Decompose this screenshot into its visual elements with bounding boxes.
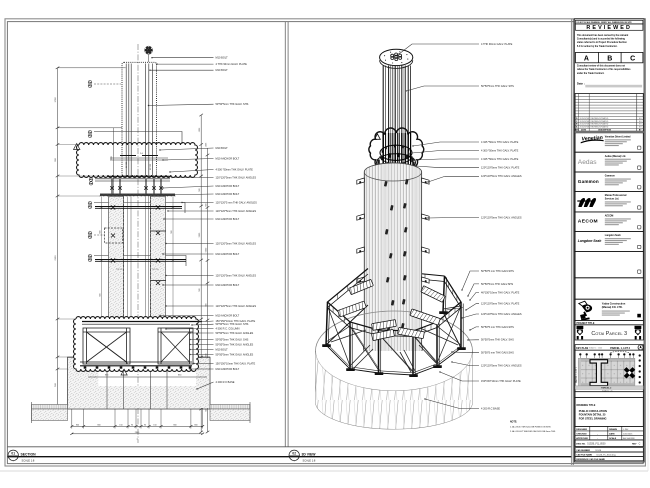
svg-text:50*50*5mm THK GALV. SHS: 50*50*5mm THK GALV. SHS bbox=[216, 337, 249, 341]
svg-text:Aedas (Macau) Ltd.: Aedas (Macau) Ltd. bbox=[605, 155, 626, 158]
svg-text:REVISED/UPDATED: REVISED/UPDATED bbox=[591, 120, 609, 123]
svg-text:Aedas: Aedas bbox=[578, 159, 597, 166]
svg-text:DRAWN: DRAWN bbox=[609, 428, 617, 431]
svg-text:42 500: 42 500 bbox=[150, 163, 152, 170]
svg-text:2015/07/08: 2015/07/08 bbox=[580, 127, 589, 129]
svg-text:A: A bbox=[584, 56, 589, 63]
svg-text:REVISED/UPDATED: REVISED/UPDATED bbox=[591, 117, 609, 120]
svg-text:Yadea Construction: Yadea Construction bbox=[602, 303, 626, 306]
svg-text:AS SHOWN: AS SHOWN bbox=[623, 437, 635, 440]
svg-text:M10 ANCHOR BOLT: M10 ANCHOR BOLT bbox=[216, 283, 240, 287]
svg-text:REVISED/UPDATED: REVISED/UPDATED bbox=[591, 123, 609, 126]
svg-text:NOTE:: NOTE: bbox=[510, 422, 517, 424]
svg-text:800: 800 bbox=[194, 424, 197, 426]
svg-text:5.4 for action by the Trade Co: 5.4 for action by the Trade Contractor. bbox=[577, 45, 618, 48]
svg-text:150*150*10mm THK GALV. PLATE: 150*150*10mm THK GALV. PLATE bbox=[481, 379, 521, 383]
svg-text:REVIEWED: REVIEWED bbox=[586, 25, 632, 31]
svg-text:C: C bbox=[630, 56, 635, 63]
svg-text:46*150*10mm THK GALV. PLATE: 46*150*10mm THK GALV. PLATE bbox=[481, 290, 520, 294]
svg-text:DWG NO.: DWG NO. bbox=[576, 443, 586, 445]
svg-text:REV: REV bbox=[632, 443, 637, 445]
svg-text:REVISED/UPDATED: REVISED/UPDATED bbox=[591, 126, 609, 129]
svg-text:M10 ANCHOR BOLT: M10 ANCHOR BOLT bbox=[216, 156, 240, 160]
svg-text:Consultants(s) and is accorded: Consultants(s) and is accorded the follo… bbox=[577, 38, 626, 41]
svg-text:4 300 *50mm THK GALV. PLATE: 4 300 *50mm THK GALV. PLATE bbox=[481, 148, 519, 152]
svg-text:120*120*5mm THK GALV. ANGLES: 120*120*5mm THK GALV. ANGLES bbox=[216, 241, 257, 245]
svg-text:Gammon: Gammon bbox=[605, 176, 616, 178]
svg-text:Langdon Seah: Langdon Seah bbox=[605, 235, 621, 237]
svg-text:150: 150 bbox=[119, 424, 122, 426]
svg-text:4 500 R.C. COLUMN: 4 500 R.C. COLUMN bbox=[216, 327, 240, 331]
svg-text:This document has been revised: This document has been revised by the re… bbox=[577, 34, 629, 37]
svg-text:DRAWING TITLE: DRAWING TITLE bbox=[577, 404, 596, 407]
svg-text:M10 BOLT: M10 BOLT bbox=[216, 68, 229, 72]
svg-text:CAD FILE NAME: CAD FILE NAME bbox=[576, 453, 592, 456]
svg-text:120*120*5mm THK GALV. PLATE: 120*120*5mm THK GALV. PLATE bbox=[481, 166, 520, 170]
svg-text:50*50*5mm THK GALV. ANGLES: 50*50*5mm THK GALV. ANGLES bbox=[216, 342, 254, 346]
svg-text:120*120*5mm THK GALV. ANGLES: 120*120*5mm THK GALV. ANGLES bbox=[481, 312, 522, 316]
svg-text:5152B_FQ_8500: 5152B_FQ_8500 bbox=[587, 442, 606, 445]
svg-text:2100: 2100 bbox=[55, 255, 57, 261]
svg-text:50*50*5mm THK GALV. SHS: 50*50*5mm THK GALV. SHS bbox=[481, 338, 514, 342]
svg-text:M10 ANCHOR BOLT: M10 ANCHOR BOLT bbox=[216, 252, 240, 256]
svg-text:AECOM: AECOM bbox=[605, 215, 614, 218]
svg-text:SCALE 1 : 7,500: SCALE 1 : 7,500 bbox=[589, 347, 602, 350]
svg-text:SCALE: SCALE bbox=[609, 437, 617, 440]
svg-text:2015/07/08: 2015/07/08 bbox=[580, 118, 589, 120]
svg-text:M10 ANCHOR BOLT: M10 ANCHOR BOLT bbox=[216, 217, 240, 221]
svg-text:DESIGNED: DESIGNED bbox=[576, 429, 587, 431]
svg-text:2015/07/08: 2015/07/08 bbox=[580, 124, 589, 126]
svg-text:PARCEL 1, LOT 1: PARCEL 1, LOT 1 bbox=[575, 366, 578, 383]
svg-text:50*50*5 mm THK GALV.SHS: 50*50*5 mm THK GALV.SHS bbox=[481, 269, 514, 273]
svg-text:L.WU: L.WU bbox=[623, 429, 629, 431]
svg-text:M10 ANCHOR BOLT: M10 ANCHOR BOLT bbox=[216, 367, 240, 371]
svg-text:DATE: DATE bbox=[581, 129, 587, 132]
svg-text:800: 800 bbox=[173, 424, 176, 426]
svg-text:relieve the Trade Contractor: relieve the Trade Contractor of his resp… bbox=[577, 68, 631, 71]
svg-text:150: 150 bbox=[153, 424, 156, 426]
svg-text:1708: 1708 bbox=[55, 97, 57, 103]
svg-text:(Macau) CO. LTD.: (Macau) CO. LTD. bbox=[602, 306, 623, 309]
svg-text:800: 800 bbox=[97, 424, 100, 426]
svg-text:90: 90 bbox=[131, 424, 133, 426]
svg-text:M10 ANCHOR BOLT: M10 ANCHOR BOLT bbox=[216, 313, 240, 317]
svg-text:120*120*5mm THK GALV. PLATE: 120*120*5mm THK GALV. PLATE bbox=[481, 302, 520, 306]
svg-text:M10 BOLT: M10 BOLT bbox=[216, 347, 229, 351]
svg-text:M10 BOLT: M10 BOLT bbox=[216, 146, 229, 150]
svg-text:B: B bbox=[607, 56, 612, 63]
svg-text:120*120*5mm THK GALV. ANGLES: 120*120*5mm THK GALV. ANGLES bbox=[216, 175, 257, 179]
svg-text:4 THK 90mm GALV. PLATE: 4 THK 90mm GALV. PLATE bbox=[216, 62, 248, 66]
svg-text:-: - bbox=[294, 460, 295, 463]
svg-text:PARCEL 1, LOT 2: PARCEL 1, LOT 2 bbox=[610, 347, 630, 350]
svg-text:C: C bbox=[639, 442, 641, 445]
svg-text:4L 500: 4L 500 bbox=[126, 161, 128, 168]
svg-text:Venetian Orient Limited: Venetian Orient Limited bbox=[605, 135, 631, 138]
svg-text:120*120*5mm THK GALV. ANGLES: 120*120*5mm THK GALV. ANGLES bbox=[216, 209, 257, 213]
svg-text:2015/07/08: 2015/07/08 bbox=[580, 121, 589, 123]
svg-text:3D VIEW: 3D VIEW bbox=[302, 452, 317, 456]
svg-text:DATE: DATE bbox=[609, 432, 615, 435]
svg-text:50*50*5mm THK GALV. SHS: 50*50*5mm THK GALV. SHS bbox=[216, 102, 249, 106]
svg-text:M10 ANCHOR BOLT: M10 ANCHOR BOLT bbox=[216, 192, 240, 196]
svg-text:CAD NUMBER: CAD NUMBER bbox=[576, 449, 590, 452]
svg-text:120*120*5mm THK GALV. ANGLES: 120*120*5mm THK GALV. ANGLES bbox=[481, 364, 522, 368]
svg-text:status referred to in Projec: status referred to in Project Procedure … bbox=[577, 41, 628, 44]
svg-text:-: - bbox=[13, 460, 14, 463]
svg-text:PUBLIC CIRCULATION: PUBLIC CIRCULATION bbox=[579, 409, 607, 413]
svg-text:TYP. 50: TYP. 50 bbox=[116, 269, 122, 271]
svg-text:120*120*5mm THK GALV. ANGLES: 120*120*5mm THK GALV. ANGLES bbox=[216, 304, 257, 308]
svg-text:120*120*5 mm THK GALV. ANGLES: 120*120*5 mm THK GALV. ANGLES bbox=[216, 200, 258, 204]
svg-text:90: 90 bbox=[144, 424, 146, 426]
svg-text:50*50*5mm THK GALV.SHS: 50*50*5mm THK GALV.SHS bbox=[481, 282, 513, 286]
svg-text:under the Trade Contract.: under the Trade Contract. bbox=[577, 72, 605, 75]
svg-text:AECOM: AECOM bbox=[578, 219, 598, 225]
svg-text:Langdon·Seah: Langdon·Seah bbox=[578, 239, 602, 243]
svg-text:SECTION: SECTION bbox=[21, 452, 37, 456]
svg-text:02: 02 bbox=[292, 452, 296, 456]
svg-text:Date :: Date : bbox=[577, 81, 585, 85]
svg-text:4 345 *50mm THK GALV. PLATE: 4 345 *50mm THK GALV. PLATE bbox=[481, 140, 519, 144]
svg-text:01: 01 bbox=[11, 452, 15, 456]
svg-text:FOUNTAIN DETAIL 25: FOUNTAIN DETAIL 25 bbox=[579, 413, 606, 417]
svg-text:Gammon: Gammon bbox=[578, 179, 599, 184]
svg-text:120*120*5mm THK GALV. ANGLES: 120*120*5mm THK GALV. ANGLES bbox=[481, 174, 522, 178]
svg-text:4 200 R.C BASE: 4 200 R.C BASE bbox=[216, 380, 235, 384]
svg-text:4 500 *50mm THK GALV. PLATE: 4 500 *50mm THK GALV. PLATE bbox=[216, 167, 254, 171]
svg-text:4 200 R.C BASE: 4 200 R.C BASE bbox=[481, 407, 500, 411]
svg-text:DESCRIPTION: DESCRIPTION bbox=[598, 130, 611, 132]
svg-text:TYP. 50: TYP. 50 bbox=[152, 269, 158, 271]
svg-text:50*50*5 mm THK GALV.SHS: 50*50*5 mm THK GALV.SHS bbox=[481, 351, 514, 355]
svg-text:50*50*5mm THK GALV. SHS: 50*50*5mm THK GALV. SHS bbox=[481, 84, 514, 88]
svg-text:800: 800 bbox=[76, 424, 79, 426]
svg-text:150*150*10mm THK GALV. PLATE: 150*150*10mm THK GALV. PLATE bbox=[216, 361, 256, 365]
svg-text:M10 BOLT: M10 BOLT bbox=[216, 56, 229, 60]
svg-text:4 345 *50mm THK GALV. PLATE: 4 345 *50mm THK GALV. PLATE bbox=[481, 157, 519, 161]
svg-text:Services Ltd.: Services Ltd. bbox=[605, 198, 620, 201]
svg-text:APPROVED: APPROVED bbox=[576, 437, 588, 440]
svg-text:2. ALL FILLET WELDED SHOULD BE: 2. ALL FILLET WELDED SHOULD BE 6mm THK. bbox=[510, 430, 556, 433]
svg-text:CHECKED: CHECKED bbox=[576, 433, 587, 435]
svg-text:SCALE 1:8: SCALE 1:8 bbox=[303, 458, 316, 462]
svg-text:SCALE 1:8: SCALE 1:8 bbox=[22, 458, 35, 462]
svg-text:50*50*5mm THK GALV. ANGLES: 50*50*5mm THK GALV. ANGLES bbox=[216, 352, 254, 356]
svg-text:Macau Professional: Macau Professional bbox=[605, 195, 627, 197]
svg-text:PARCEL 2: PARCEL 2 bbox=[601, 387, 612, 390]
svg-text:4 THK 90mm GALV. PLATE: 4 THK 90mm GALV. PLATE bbox=[481, 42, 513, 46]
svg-text:KEY PLAN: KEY PLAN bbox=[576, 347, 588, 350]
svg-text:50*50*5mm THK GALV. ANGLES: 50*50*5mm THK GALV. ANGLES bbox=[216, 331, 254, 335]
svg-text:120*120*5mm THK GALV. ANGLES: 120*120*5mm THK GALV. ANGLES bbox=[216, 273, 257, 277]
svg-text:50*50*5mm THK GALV. SHS: 50*50*5mm THK GALV. SHS bbox=[216, 322, 249, 326]
svg-text:Consultant review of this d: Consultant review of this document does … bbox=[577, 65, 625, 68]
svg-text:1. ALL BOLT SHOULD BE FIXING O: 1. ALL BOLT SHOULD BE FIXING ON SITE. bbox=[510, 426, 552, 429]
svg-text:FOR STEEL DRAWING: FOR STEEL DRAWING bbox=[579, 416, 607, 420]
svg-text:14/1/2015: 14/1/2015 bbox=[623, 433, 633, 435]
svg-text:50*50*5 mm THK GALV.SHS: 50*50*5 mm THK GALV.SHS bbox=[481, 325, 514, 329]
svg-text:M10 ANCHOR BOLT: M10 ANCHOR BOLT bbox=[216, 184, 240, 188]
svg-text:REFERENCE CAD FILE NAME: REFERENCE CAD FILE NAME bbox=[576, 458, 605, 461]
svg-text:120*120*5mm THK GALV. ANGLES: 120*120*5mm THK GALV. ANGLES bbox=[481, 216, 522, 220]
